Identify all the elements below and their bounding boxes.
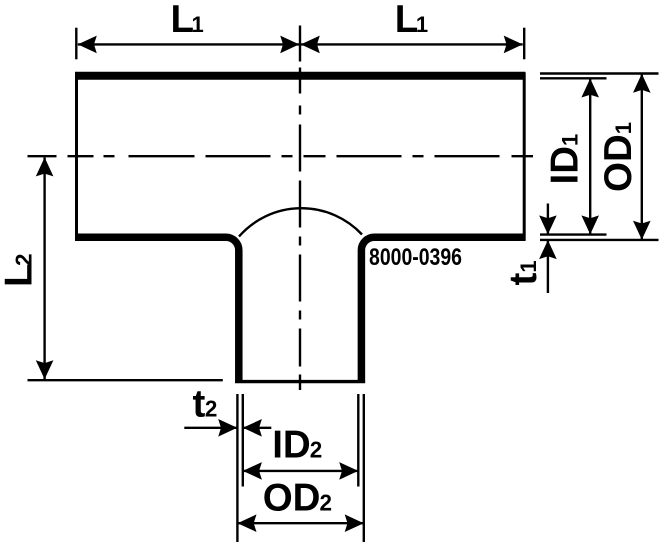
svg-text:8000-0396: 8000-0396 <box>369 244 462 271</box>
